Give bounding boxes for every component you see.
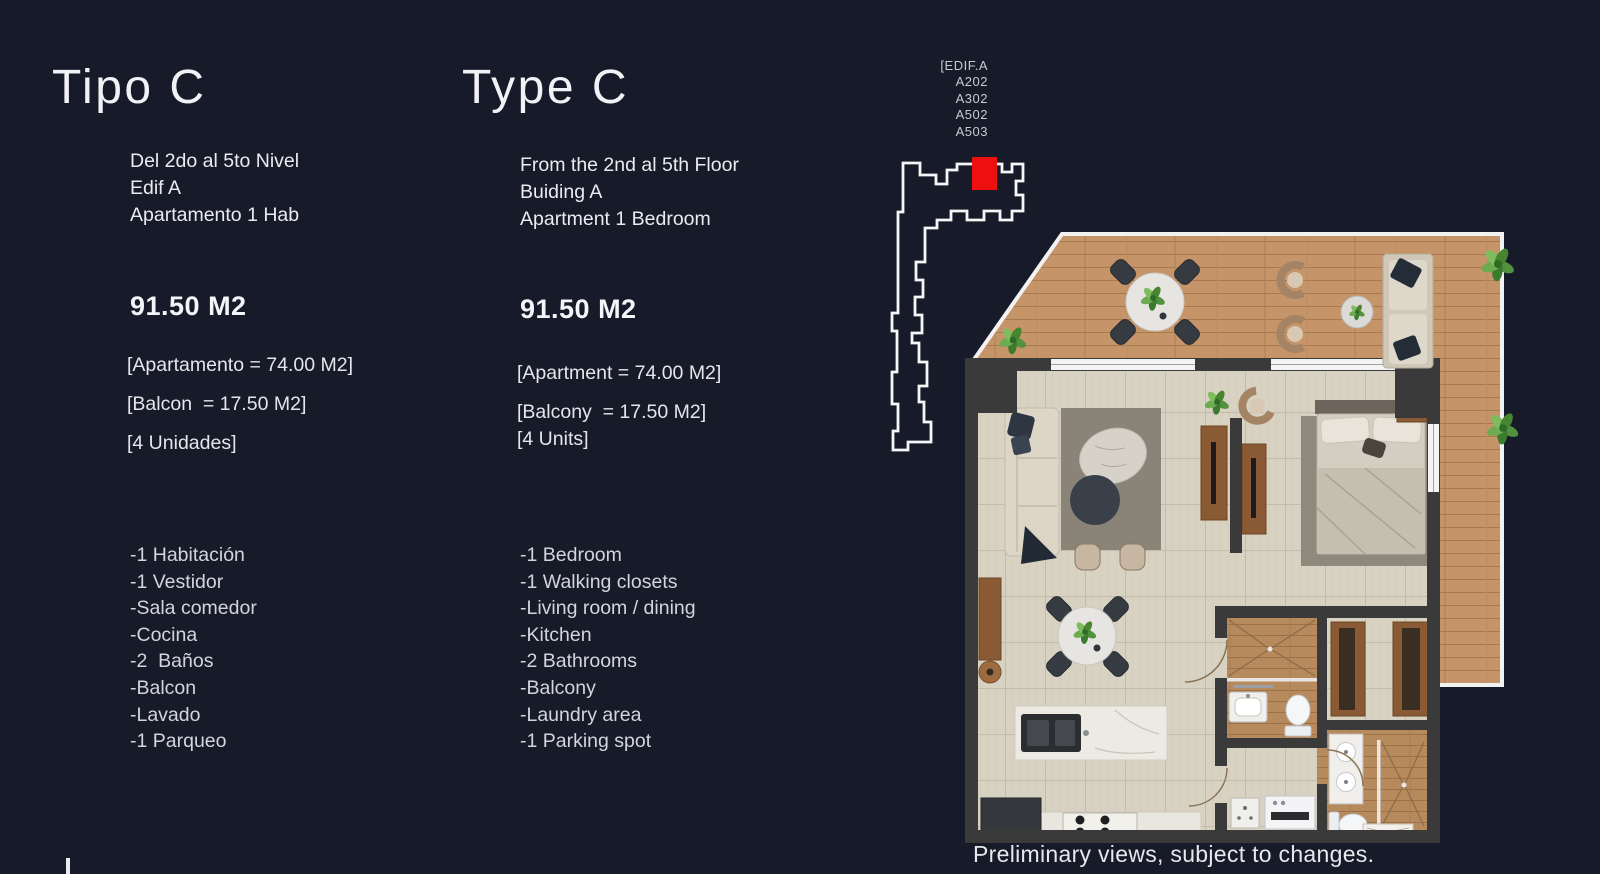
shower-glass: [1377, 740, 1381, 828]
subtitle-line: Apartamento 1 Hab: [130, 202, 299, 229]
outdoor-sofa: [1383, 254, 1433, 368]
detail-line: [Apartamento = 74.00 M2]: [127, 354, 353, 377]
side-table: [1070, 475, 1120, 525]
detail-line: [Apartment = 74.00 M2]: [517, 362, 721, 385]
feature-line: -1 Bedroom: [520, 542, 696, 569]
feature-line: -Cocina: [130, 622, 257, 649]
logo-fragment: [66, 858, 70, 874]
bathroom1-toilet: [1285, 695, 1311, 736]
unit-highlight-marker: [972, 157, 997, 190]
plan-caption: Preliminary views, subject to changes.: [973, 841, 1374, 868]
title-spanish: Tipo C: [52, 60, 207, 115]
feature-line: -1 Parking spot: [520, 728, 696, 755]
subtitle-line: Buiding A: [520, 179, 739, 206]
locator-label: [EDIF.A: [898, 58, 988, 74]
subtitle-line: From the 2nd al 5th Floor: [520, 152, 739, 179]
laundry-sink: [1231, 798, 1259, 828]
subtitle-line: Apartment 1 Bedroom: [520, 206, 739, 233]
feature-line: -1 Walking closets: [520, 569, 696, 596]
locator-label: A503: [898, 124, 988, 140]
feature-line: -Balcony: [520, 675, 696, 702]
subtitle-line: Edif A: [130, 175, 299, 202]
detail-line: [Balcon = 17.50 M2]: [127, 393, 353, 416]
feature-line: -1 Parqueo: [130, 728, 257, 755]
feature-line: -Laundry area: [520, 702, 696, 729]
locator-label: A302: [898, 91, 988, 107]
details-spanish: [Apartamento = 74.00 M2] [Balcon = 17.50…: [127, 354, 353, 455]
laundry-area: [1231, 796, 1315, 829]
stool: [1120, 544, 1145, 570]
feature-line: -Kitchen: [520, 622, 696, 649]
area-spanish: 91.50 M2: [130, 291, 247, 322]
subtitle-spanish: Del 2do al 5to Nivel Edif A Apartamento …: [130, 148, 299, 229]
stool: [1075, 544, 1100, 570]
feature-line: -Balcon: [130, 675, 257, 702]
sideboard: [979, 578, 1001, 660]
locator-label: A202: [898, 74, 988, 90]
title-english: Type C: [462, 60, 629, 115]
features-spanish: -1 Habitación -1 Vestidor -Sala comedor …: [130, 542, 257, 755]
floor-plan-image: [965, 228, 1525, 846]
feature-line: -1 Habitación: [130, 542, 257, 569]
detail-line: [Balcony = 17.50 M2]: [517, 401, 721, 424]
wicker-chair: [1281, 319, 1303, 349]
feature-line: -Lavado: [130, 702, 257, 729]
locator-label: A502: [898, 107, 988, 123]
area-english: 91.50 M2: [520, 294, 637, 325]
subtitle-english: From the 2nd al 5th Floor Buiding A Apar…: [520, 152, 739, 233]
building-locator-labels: [EDIF.A A202 A302 A502 A503: [898, 58, 988, 140]
shower-glass: [1227, 678, 1317, 682]
feature-line: -Living room / dining: [520, 595, 696, 622]
wicker-chair: [1281, 265, 1303, 295]
features-english: -1 Bedroom -1 Walking closets -Living ro…: [520, 542, 696, 755]
sofa: [1005, 408, 1059, 564]
feature-line: -1 Vestidor: [130, 569, 257, 596]
feature-line: -2 Bathrooms: [520, 648, 696, 675]
feature-line: -Sala comedor: [130, 595, 257, 622]
details-english: [Apartment = 74.00 M2] [Balcony = 17.50 …: [517, 362, 721, 451]
brochure-page: { "page": { "background": "#171a28", "ca…: [0, 0, 1600, 874]
feature-line: -2 Baños: [130, 648, 257, 675]
detail-line: [4 Units]: [517, 428, 721, 451]
detail-line: [4 Unidades]: [127, 432, 353, 455]
subtitle-line: Del 2do al 5to Nivel: [130, 148, 299, 175]
